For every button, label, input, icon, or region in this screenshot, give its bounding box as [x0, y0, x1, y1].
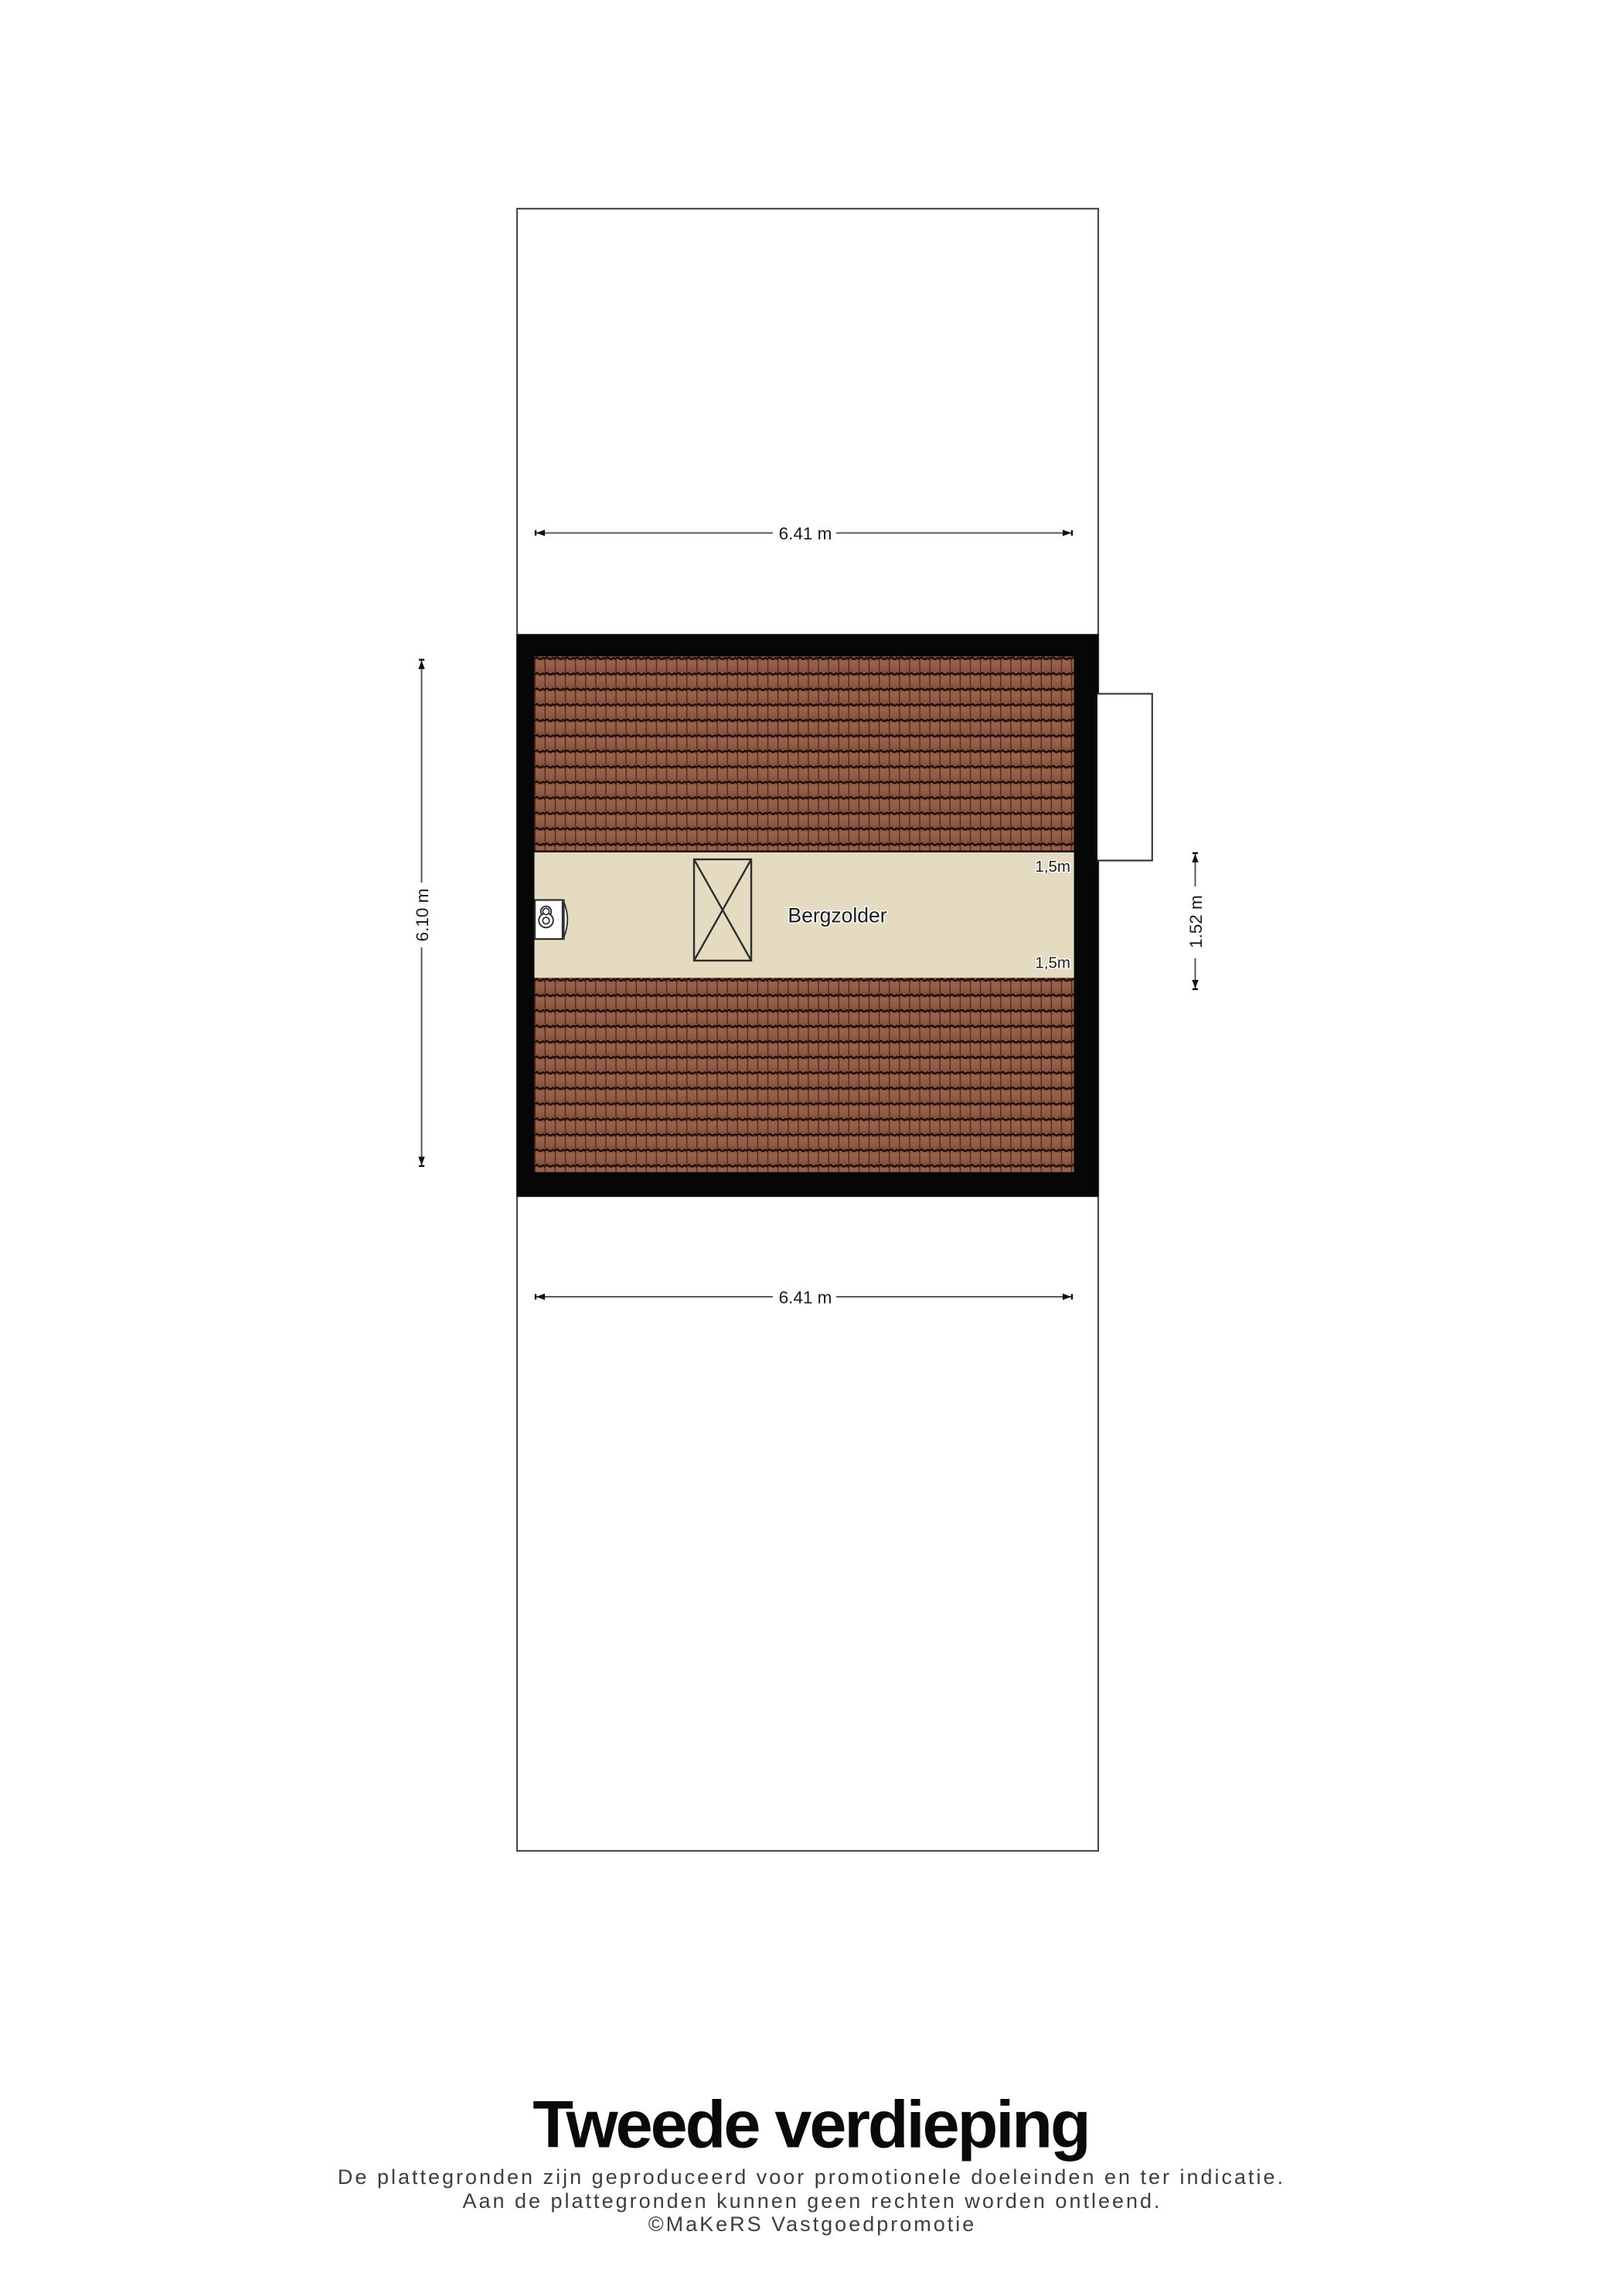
svg-text:1,5m: 1,5m [1035, 954, 1070, 972]
svg-text:Bergzolder: Bergzolder [788, 904, 886, 927]
svg-text:1,5m: 1,5m [1035, 858, 1070, 876]
svg-text:6.10 m: 6.10 m [413, 889, 432, 942]
svg-text:De plattegronden zijn geproduc: De plattegronden zijn geproduceerd voor … [338, 2165, 1285, 2189]
svg-text:1.52 m: 1.52 m [1186, 895, 1206, 948]
svg-text:©MaKeRS Vastgoedpromotie: ©MaKeRS Vastgoedpromotie [648, 2213, 977, 2236]
svg-text:6.41 m: 6.41 m [779, 524, 832, 543]
svg-text:6.41 m: 6.41 m [779, 1287, 832, 1307]
svg-text:Tweede verdieping: Tweede verdieping [532, 2088, 1088, 2162]
svg-text:Aan de plattegronden kunnen ge: Aan de plattegronden kunnen geen rechten… [462, 2189, 1162, 2213]
